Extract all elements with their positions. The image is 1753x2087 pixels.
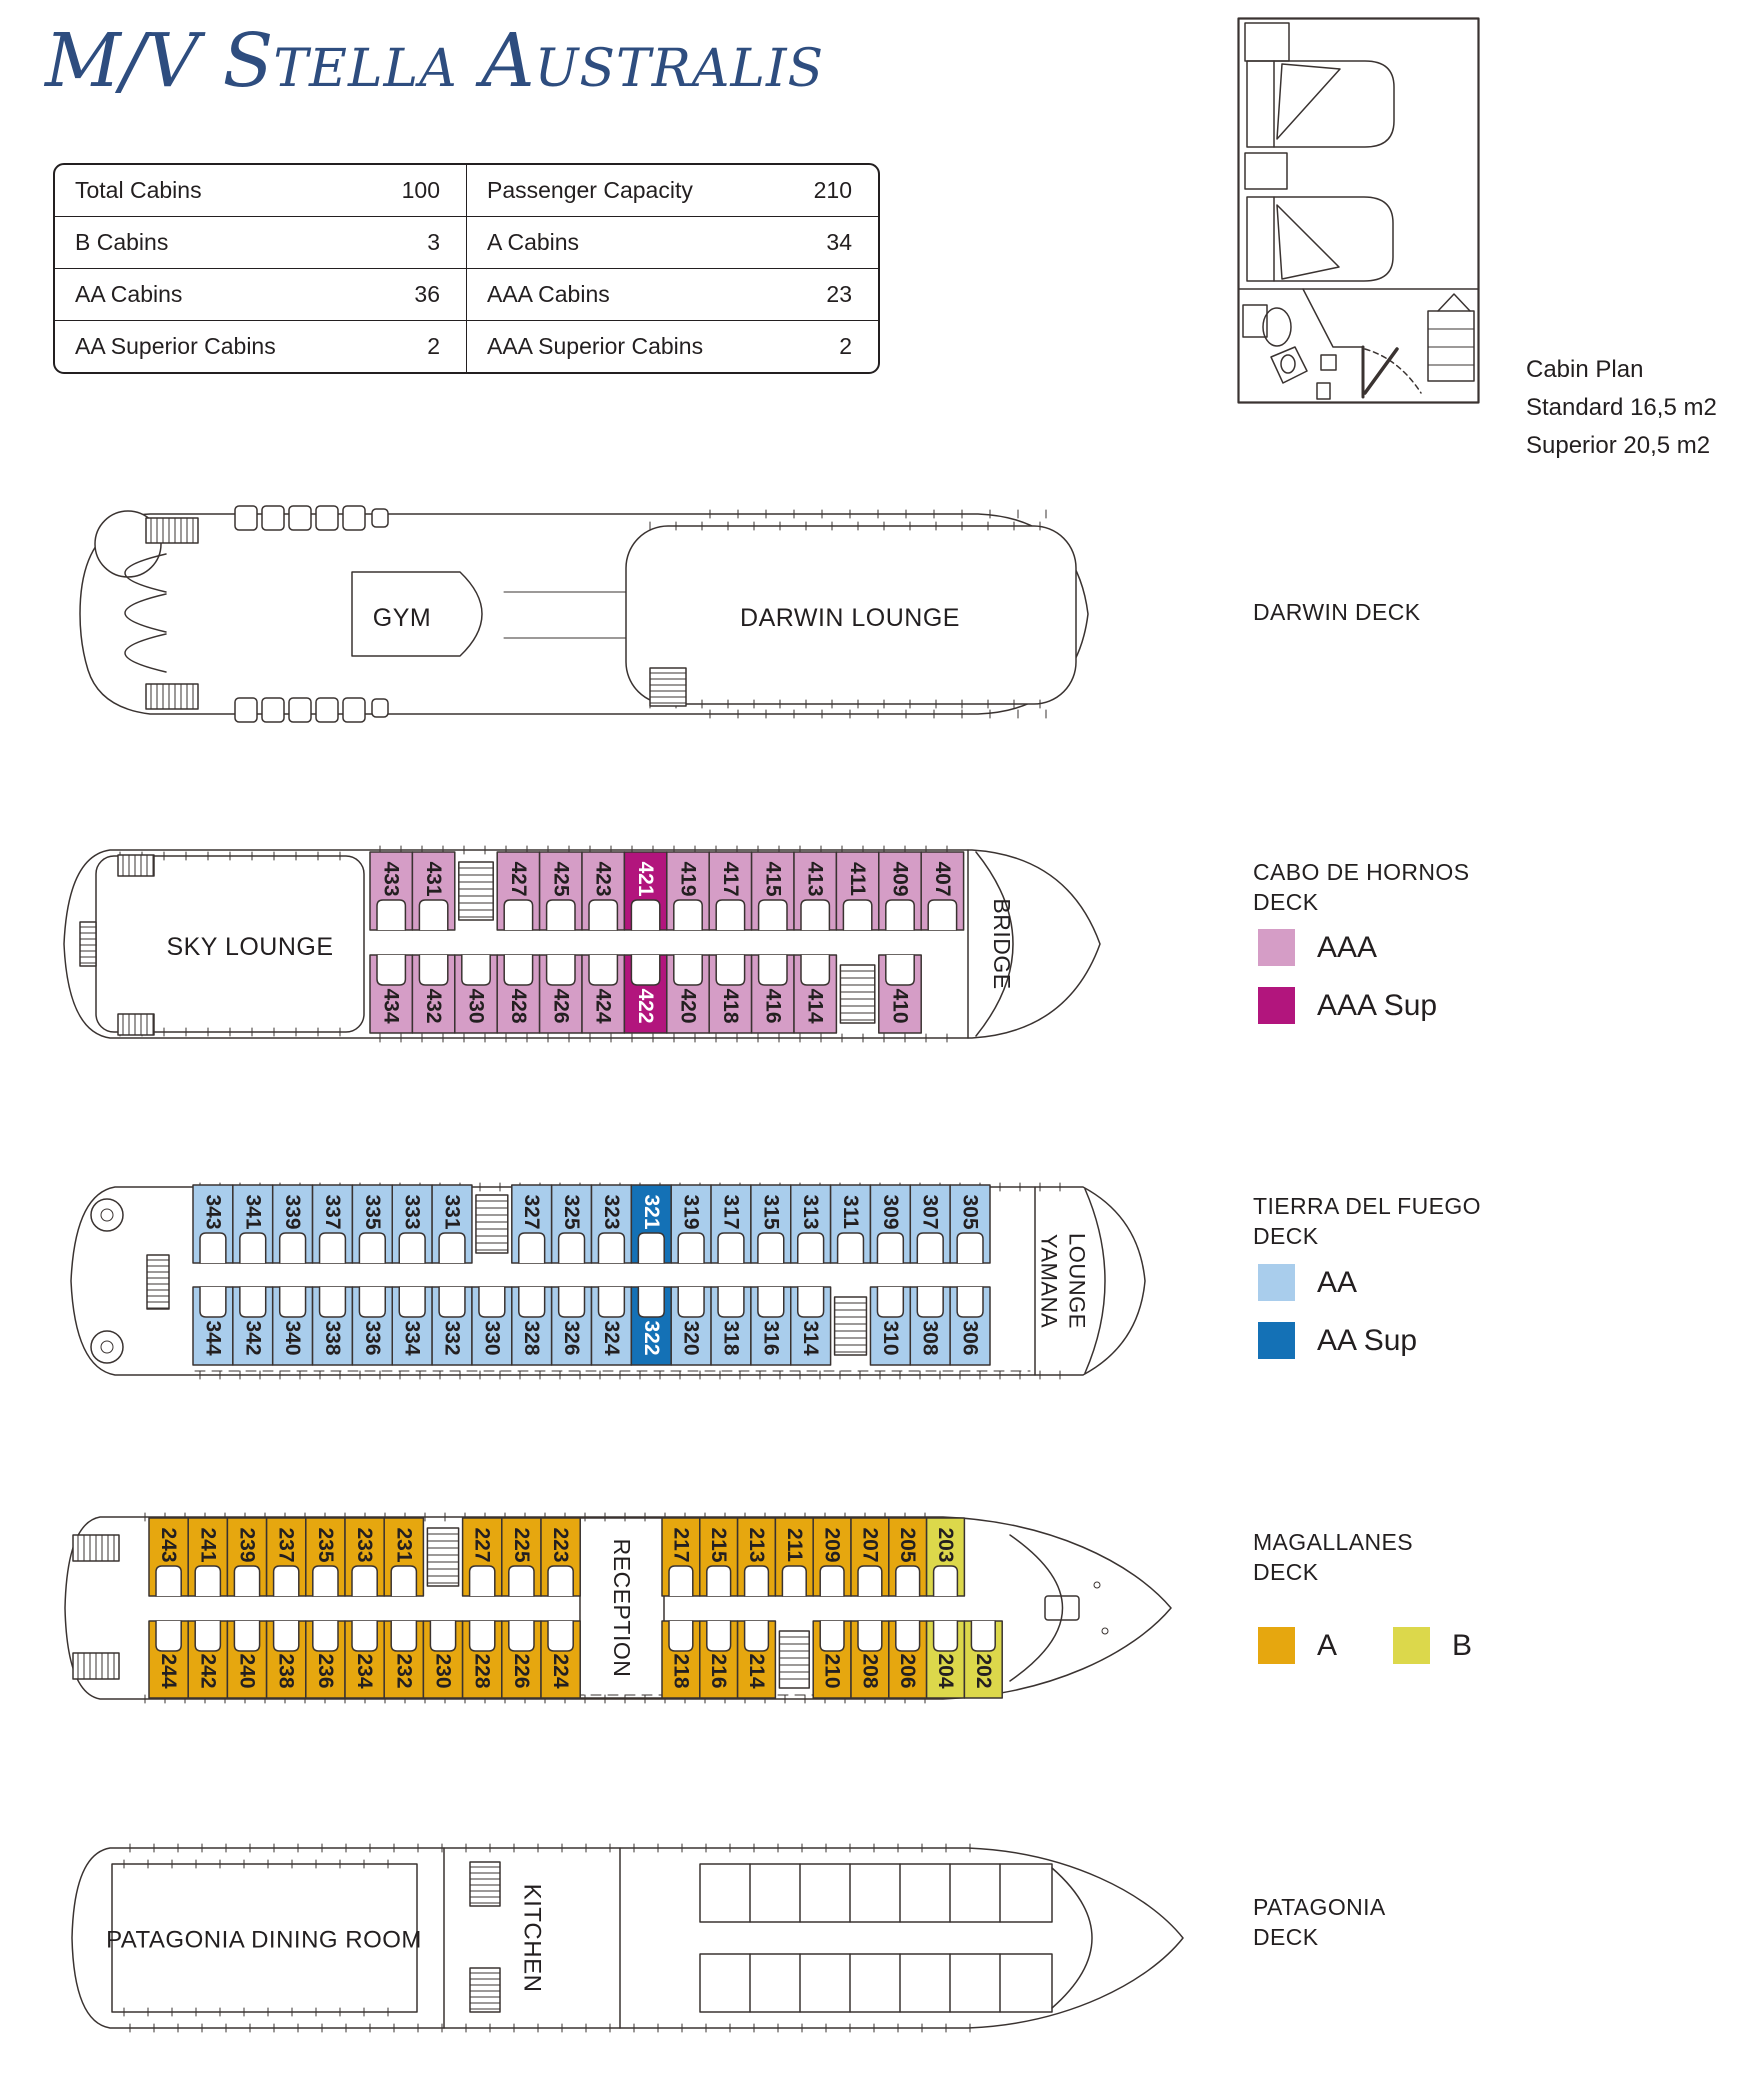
cabin-number: 234 (353, 1653, 376, 1688)
cabin-number: 344 (201, 1320, 224, 1355)
cabin-number: 239 (236, 1527, 259, 1562)
deck-label-magallanes: MAGALLANESDECK (1253, 1527, 1413, 1587)
cabin-number: 205 (896, 1527, 919, 1562)
cabin-number: 421 (634, 861, 657, 896)
cabin-307: 307 (910, 1185, 950, 1263)
cabin-number: 236 (314, 1653, 337, 1688)
cabin-number: 419 (677, 861, 700, 896)
cabin-number: 217 (669, 1527, 692, 1562)
cabin-number: 241 (196, 1527, 219, 1562)
cabin-235: 235 (306, 1518, 345, 1596)
cabin-number: 415 (761, 861, 784, 896)
cabin-225: 225 (502, 1518, 541, 1596)
info-table: Total Cabins100Passenger Capacity210B Ca… (53, 163, 880, 374)
cabin-344: 344 (193, 1287, 233, 1365)
cabin-226: 226 (502, 1621, 541, 1698)
info-value: 2 (756, 320, 878, 372)
info-label: Passenger Capacity (466, 165, 756, 216)
cabin-number: 433 (380, 861, 403, 896)
cabin-number: 240 (236, 1653, 259, 1688)
cabin-number: 233 (353, 1527, 376, 1562)
deck-label-line: DECK (1253, 1922, 1386, 1952)
cabin-206: 206 (889, 1621, 927, 1698)
cabin-number: 207 (858, 1527, 881, 1562)
cabin-number: 223 (549, 1527, 572, 1562)
info-label: AA Superior Cabins (55, 320, 344, 372)
cabin-number: 339 (281, 1194, 304, 1229)
info-value: 3 (344, 216, 466, 268)
cabin-number: 238 (275, 1653, 298, 1688)
cabin-214: 214 (738, 1621, 776, 1698)
lifeboat-icon (343, 698, 365, 722)
cabin-number: 321 (640, 1194, 663, 1229)
cabin-224: 224 (541, 1621, 580, 1698)
legend-item: AAA (1258, 929, 1437, 966)
deck-label-line: DARWIN DECK (1253, 597, 1421, 627)
cabin-426: 426 (540, 955, 582, 1033)
room-label-sky-lounge: SKY LOUNGE (166, 933, 333, 961)
page-title: M/V STELLA AUSTRALIS (45, 18, 824, 104)
info-label: B Cabins (55, 216, 344, 268)
room-label-patagonia-dining-room: PATAGONIA DINING ROOM (106, 1927, 422, 1954)
cabin-number: 320 (680, 1320, 703, 1355)
cabin-330: 330 (472, 1287, 512, 1365)
cabin-313: 313 (791, 1185, 831, 1263)
legend-item: B (1393, 1627, 1472, 1664)
cabin-316: 316 (751, 1287, 791, 1365)
cabin-410: 410 (879, 955, 921, 1033)
cabin-243: 243 (149, 1518, 188, 1596)
cabin-number: 420 (677, 988, 700, 1023)
cabin-number: 434 (380, 988, 403, 1023)
cabin-428: 428 (497, 955, 539, 1033)
shower-icon (1271, 347, 1307, 383)
caption-line: Superior 20,5 m2 (1526, 427, 1717, 465)
cabin-230: 230 (423, 1621, 462, 1698)
legend-item: AA Sup (1258, 1322, 1417, 1359)
cabin-number: 214 (745, 1653, 768, 1688)
cabin-number: 243 (157, 1527, 180, 1562)
deck-drawing-cabo: 4334314274254234214194174154134114094074… (50, 840, 1125, 1050)
cabin-number: 425 (549, 861, 572, 896)
cabin-number: 309 (879, 1194, 902, 1229)
lifeboat-icon (316, 506, 338, 530)
cabin-number: 410 (889, 988, 912, 1023)
cabin-number: 324 (600, 1320, 623, 1355)
cabin-308: 308 (910, 1287, 950, 1365)
cabin-236: 236 (306, 1621, 345, 1698)
cabin-number: 407 (931, 861, 954, 896)
room-label-reception: RECEPTION (609, 1539, 635, 1678)
cabin-240: 240 (227, 1621, 266, 1698)
cabin-216: 216 (700, 1621, 738, 1698)
cabin-number: 341 (241, 1194, 264, 1229)
cabin-218: 218 (662, 1621, 700, 1698)
cabin-number: 424 (592, 988, 615, 1023)
deck-drawing-patagonia: PATAGONIA DINING ROOMKITCHEN (50, 1838, 1190, 2038)
cabin-207: 207 (851, 1518, 889, 1596)
cabin-number: 322 (640, 1320, 663, 1355)
cabin-430: 430 (455, 955, 497, 1033)
lifeboat-icon (235, 698, 257, 722)
stairs-icon (840, 965, 874, 1023)
cabin-332: 332 (432, 1287, 472, 1365)
cabin-number: 414 (804, 988, 827, 1023)
cabin-number: 417 (719, 861, 742, 896)
stairs-icon (835, 1297, 867, 1355)
deck-drawing-tierra: 3433413393373353333313273253233213193173… (55, 1175, 1175, 1390)
cabin-number: 331 (441, 1194, 464, 1229)
cabin-325: 325 (552, 1185, 592, 1263)
cabin-number: 333 (401, 1194, 424, 1229)
cabin-number: 317 (719, 1194, 742, 1229)
title-part: M/V S (45, 18, 273, 104)
cabin-423: 423 (582, 852, 624, 930)
legend-swatch-aa_sup (1258, 1322, 1295, 1359)
stairs-icon (476, 1195, 508, 1253)
cabin-217: 217 (662, 1518, 700, 1596)
cabin-number: 326 (560, 1320, 583, 1355)
cabin-plan-caption: Cabin Plan Standard 16,5 m2 Superior 20,… (1526, 351, 1717, 465)
cabin-number: 328 (520, 1320, 543, 1355)
cabin-421: 421 (624, 852, 666, 930)
cabin-239: 239 (227, 1518, 266, 1596)
legend-label: B (1430, 1629, 1472, 1663)
cabin-431: 431 (412, 852, 454, 930)
cabin-number: 210 (821, 1653, 844, 1688)
cabin-number: 416 (761, 988, 784, 1023)
cabin-number: 242 (196, 1653, 219, 1688)
cabin-number: 422 (634, 988, 657, 1023)
cabin-425: 425 (540, 852, 582, 930)
cabin-327: 327 (512, 1185, 552, 1263)
info-value: 23 (756, 268, 878, 320)
deck-label-line: CABO DE HORNOS (1253, 857, 1469, 887)
cabin-433: 433 (370, 852, 412, 930)
cabin-number: 315 (759, 1194, 782, 1229)
nightstand (1245, 23, 1289, 61)
deck-label-line: PATAGONIA (1253, 1892, 1386, 1922)
title-part: USTRALIS (535, 39, 825, 99)
cabin-409: 409 (879, 852, 921, 930)
cabin-418: 418 (709, 955, 751, 1033)
cabin-number: 428 (507, 988, 530, 1023)
cabin-number: 343 (201, 1194, 224, 1229)
cabin-223: 223 (541, 1518, 580, 1596)
cabin-number: 244 (157, 1653, 180, 1688)
cabin-419: 419 (667, 852, 709, 930)
legend-swatch-aa (1258, 1264, 1295, 1301)
cabin-number: 332 (441, 1320, 464, 1355)
deck-drawing-darwin: GYMDARWIN LOUNGE (50, 492, 1110, 737)
cabin-420: 420 (667, 955, 709, 1033)
cabin-number: 228 (471, 1653, 494, 1688)
cabin-number: 203 (934, 1527, 957, 1562)
legend-item: AAA Sup (1258, 987, 1437, 1024)
cabin-320: 320 (671, 1287, 711, 1365)
cabin-number: 319 (680, 1194, 703, 1229)
cabin-205: 205 (889, 1518, 927, 1596)
deck-label-line: MAGALLANES (1253, 1527, 1413, 1557)
cabin-number: 316 (759, 1320, 782, 1355)
cabin-number: 325 (560, 1194, 583, 1229)
cabin-number: 411 (846, 862, 869, 896)
cabin-number: 209 (821, 1527, 844, 1562)
cabin-number: 327 (520, 1194, 543, 1229)
cabin-number: 311 (839, 1195, 862, 1229)
cabin-331: 331 (432, 1185, 472, 1263)
cabin-311: 311 (831, 1185, 871, 1263)
cabin-324: 324 (592, 1287, 632, 1365)
cabin-315: 315 (751, 1185, 791, 1263)
info-label: AAA Cabins (466, 268, 756, 320)
cabin-417: 417 (709, 852, 751, 930)
cabin-343: 343 (193, 1185, 233, 1263)
deck-label-line: DECK (1253, 1221, 1481, 1251)
cabin-328: 328 (512, 1287, 552, 1365)
cabin-number: 318 (719, 1320, 742, 1355)
cabin-416: 416 (752, 955, 794, 1033)
bed (1247, 61, 1394, 147)
info-label: Total Cabins (55, 165, 344, 216)
deck-drawing-magallanes: 2432412392372352332312272252232172152132… (45, 1505, 1185, 1710)
cabin-238: 238 (267, 1621, 306, 1698)
cabin-number: 418 (719, 988, 742, 1023)
room-label-lounge: LOUNGE (1065, 1233, 1090, 1329)
cabin-number: 430 (465, 988, 488, 1023)
cabin-339: 339 (273, 1185, 313, 1263)
cabin-number: 224 (549, 1653, 572, 1688)
lifeboat-icon (289, 506, 311, 530)
cabin-number: 225 (510, 1527, 533, 1562)
cabin-number: 342 (241, 1320, 264, 1355)
legend-cabo: AAAAAA Sup (1258, 929, 1437, 1045)
cabin-204: 204 (927, 1621, 965, 1698)
room-label-kitchen: KITCHEN (519, 1884, 546, 1993)
cabin-424: 424 (582, 955, 624, 1033)
cabin-227: 227 (463, 1518, 502, 1596)
cabin-305: 305 (950, 1185, 990, 1263)
cabin-number: 211 (783, 1528, 806, 1562)
cabin-215: 215 (700, 1518, 738, 1596)
cabin-number: 335 (361, 1194, 384, 1229)
info-label: AA Cabins (55, 268, 344, 320)
cabin-number: 235 (314, 1527, 337, 1562)
cabin-407: 407 (921, 852, 963, 930)
deck-label-line: DECK (1253, 887, 1469, 917)
info-label: A Cabins (466, 216, 756, 268)
cabin-number: 231 (392, 1527, 415, 1562)
cabin-213: 213 (738, 1518, 776, 1596)
cabin-414: 414 (794, 955, 836, 1033)
cabin-number: 432 (422, 988, 445, 1023)
lifeboat-icon (235, 506, 257, 530)
room-label-gym: GYM (373, 604, 431, 632)
cabin-number: 218 (669, 1653, 692, 1688)
deck-label-tierra: TIERRA DEL FUEGODECK (1253, 1191, 1481, 1251)
lifeboat-icon (262, 506, 284, 530)
cabin-309: 309 (870, 1185, 910, 1263)
legend-tierra: AAAA Sup (1258, 1264, 1417, 1380)
lifeboat-icon (289, 698, 311, 722)
cabin-number: 340 (281, 1320, 304, 1355)
deck-label-darwin: DARWIN DECK (1253, 597, 1421, 627)
legend-swatch-b (1393, 1627, 1430, 1664)
deck-label-line: DECK (1253, 1557, 1413, 1587)
cabin-318: 318 (711, 1287, 751, 1365)
cabin-number: 310 (879, 1320, 902, 1355)
cabin-209: 209 (813, 1518, 851, 1596)
cabin-237: 237 (267, 1518, 306, 1596)
bed (1247, 197, 1393, 281)
cabin-number: 330 (480, 1320, 503, 1355)
lifeboat-icon (262, 698, 284, 722)
legend-item: AA (1258, 1264, 1417, 1301)
cabin-335: 335 (352, 1185, 392, 1263)
cabin-plan-drawing (1237, 17, 1480, 404)
cabin-number: 308 (919, 1320, 942, 1355)
cabin-322: 322 (631, 1287, 671, 1365)
cabin-242: 242 (188, 1621, 227, 1698)
cabin-432: 432 (412, 955, 454, 1033)
stairs-icon (459, 862, 493, 920)
cabin-number: 216 (707, 1653, 730, 1688)
cabin-334: 334 (392, 1287, 432, 1365)
cabin-number: 202 (972, 1653, 995, 1688)
cabin-number: 334 (401, 1320, 424, 1355)
cabin-number: 215 (707, 1527, 730, 1562)
cabin-number: 426 (549, 988, 572, 1023)
cabin-210: 210 (813, 1621, 851, 1698)
info-label: AAA Superior Cabins (466, 320, 756, 372)
cabin-319: 319 (671, 1185, 711, 1263)
cabin-202: 202 (964, 1621, 1002, 1698)
cabin-321: 321 (631, 1185, 671, 1263)
cabin-306: 306 (950, 1287, 990, 1365)
cabin-411: 411 (836, 852, 878, 930)
info-value: 34 (756, 216, 878, 268)
cabin-number: 413 (804, 861, 827, 896)
deck-plan-page: M/V STELLA AUSTRALIS Total Cabins100Pass… (0, 0, 1753, 2087)
cabin-number: 338 (321, 1320, 344, 1355)
info-value: 100 (344, 165, 466, 216)
legend-swatch-aaa_sup (1258, 987, 1295, 1024)
cabin-203: 203 (927, 1518, 965, 1596)
room-label-darwin-lounge: DARWIN LOUNGE (740, 604, 960, 632)
cabin-317: 317 (711, 1185, 751, 1263)
cabin-number: 409 (889, 861, 912, 896)
deck-label-patagonia: PATAGONIADECK (1253, 1892, 1386, 1952)
cabin-number: 237 (275, 1527, 298, 1562)
cabin-number: 204 (934, 1653, 957, 1688)
cabin-number: 423 (592, 861, 615, 896)
nightstand (1245, 153, 1287, 189)
caption-line: Standard 16,5 m2 (1526, 389, 1717, 427)
cabin-337: 337 (313, 1185, 353, 1263)
legend-label: AA (1295, 1266, 1357, 1300)
info-value: 210 (756, 165, 878, 216)
cabin-211: 211 (775, 1518, 813, 1596)
wardrobe-icon (1428, 311, 1474, 381)
room-label-bridge: BRIDGE (989, 898, 1015, 989)
title-part: TELLA (273, 39, 457, 99)
cabin-number: 213 (745, 1527, 768, 1562)
stairs-icon (779, 1631, 809, 1688)
stairs-icon (427, 1528, 458, 1586)
info-value: 36 (344, 268, 466, 320)
cabin-number: 230 (432, 1653, 455, 1688)
legend-label: AAA (1295, 931, 1377, 965)
room-label-yamana: YAMANA (1037, 1234, 1062, 1328)
cabin-234: 234 (345, 1621, 384, 1698)
legend-swatch-aaa (1258, 929, 1295, 966)
deck-label-line: TIERRA DEL FUEGO (1253, 1191, 1481, 1221)
cabin-415: 415 (752, 852, 794, 930)
cabin-number: 305 (959, 1194, 982, 1229)
cabin-228: 228 (463, 1621, 502, 1698)
lifeboat-icon (372, 699, 388, 717)
cabin-number: 337 (321, 1194, 344, 1229)
lifeboat-icon (316, 698, 338, 722)
cabin-336: 336 (352, 1287, 392, 1365)
cabin-341: 341 (233, 1185, 273, 1263)
cabin-314: 314 (791, 1287, 831, 1365)
cabin-427: 427 (497, 852, 539, 930)
cabin-413: 413 (794, 852, 836, 930)
cabin-number: 314 (799, 1320, 822, 1355)
lifeboat-icon (372, 509, 388, 527)
legend-label: A (1295, 1629, 1337, 1663)
cabin-number: 313 (799, 1194, 822, 1229)
cabin-208: 208 (851, 1621, 889, 1698)
cabin-number: 232 (392, 1653, 415, 1688)
cabin-number: 227 (471, 1527, 494, 1562)
cabin-338: 338 (313, 1287, 353, 1365)
cabin-333: 333 (392, 1185, 432, 1263)
cabin-number: 307 (919, 1194, 942, 1229)
caption-line: Cabin Plan (1526, 351, 1717, 389)
cabin-323: 323 (592, 1185, 632, 1263)
cabin-244: 244 (149, 1621, 188, 1698)
cabin-232: 232 (384, 1621, 423, 1698)
cabin-number: 226 (510, 1653, 533, 1688)
cabin-231: 231 (384, 1518, 423, 1596)
info-value: 2 (344, 320, 466, 372)
legend-label: AA Sup (1295, 1324, 1417, 1358)
cabin-number: 323 (600, 1194, 623, 1229)
legend-magallanes: AB (1258, 1627, 1472, 1685)
cabin-326: 326 (552, 1287, 592, 1365)
cabin-241: 241 (188, 1518, 227, 1596)
cabin-number: 431 (422, 861, 445, 896)
cabin-number: 306 (959, 1320, 982, 1355)
cabin-422: 422 (624, 955, 666, 1033)
cabin-310: 310 (870, 1287, 910, 1365)
cabin-number: 427 (507, 861, 530, 896)
cabin-number: 206 (896, 1653, 919, 1688)
cabin-340: 340 (273, 1287, 313, 1365)
deck-label-cabo: CABO DE HORNOSDECK (1253, 857, 1469, 917)
cabin-342: 342 (233, 1287, 273, 1365)
lifeboat-icon (343, 506, 365, 530)
legend-label: AAA Sup (1295, 989, 1437, 1023)
cabin-number: 336 (361, 1320, 384, 1355)
legend-swatch-a (1258, 1627, 1295, 1664)
legend-item: A (1258, 1627, 1337, 1664)
title-part: A (458, 18, 535, 104)
cabin-434: 434 (370, 955, 412, 1033)
cabin-number: 208 (858, 1653, 881, 1688)
